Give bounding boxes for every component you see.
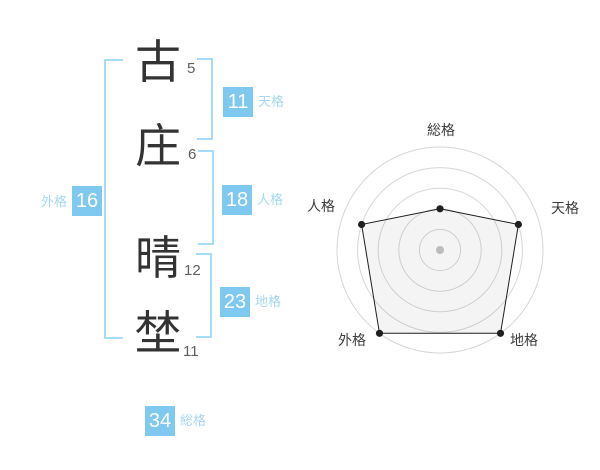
radar-data-point bbox=[358, 221, 365, 228]
radar-data-point bbox=[515, 221, 522, 228]
soukaku-score-badge: 34 bbox=[145, 406, 175, 436]
jinkaku-score-label: 人格 bbox=[257, 193, 283, 207]
stroke-count-2: 6 bbox=[188, 147, 196, 163]
radar-data-polygon bbox=[362, 209, 519, 333]
radar-axis-tenkaku: 天格 bbox=[551, 198, 579, 218]
tenkaku-score-label: 天格 bbox=[258, 95, 284, 109]
gaikaku-bracket bbox=[104, 59, 123, 339]
name-char-2: 庄 bbox=[130, 122, 186, 170]
fortune-radar-chart: 総格 天格 地格 外格 人格 bbox=[300, 110, 580, 390]
chikaku-score-label: 地格 bbox=[255, 295, 281, 309]
tenkaku-score-badge: 11 bbox=[223, 87, 253, 117]
stroke-count-3: 12 bbox=[184, 263, 201, 279]
soukaku-score-label: 総格 bbox=[180, 414, 206, 428]
radar-data-point bbox=[497, 330, 504, 337]
jinkaku-bracket bbox=[198, 150, 214, 245]
radar-data-point bbox=[436, 205, 443, 212]
radar-axis-soukaku: 総格 bbox=[427, 120, 455, 140]
radar-data-point bbox=[376, 330, 383, 337]
stroke-count-1: 5 bbox=[187, 61, 195, 77]
name-char-4: 埜 bbox=[130, 309, 186, 357]
radar-axis-gaikaku: 外格 bbox=[338, 330, 366, 350]
jinkaku-score-badge: 18 bbox=[222, 185, 252, 215]
gaikaku-score-badge: 16 bbox=[72, 186, 102, 216]
radar-axis-chikaku: 地格 bbox=[510, 330, 538, 350]
tenkaku-bracket bbox=[197, 58, 213, 140]
name-char-3: 晴 bbox=[130, 234, 186, 282]
name-char-1: 古 bbox=[130, 38, 186, 86]
gaikaku-score-label: 外格 bbox=[41, 195, 67, 209]
radar-axis-jinkaku: 人格 bbox=[307, 196, 335, 216]
chikaku-score-badge: 23 bbox=[220, 287, 250, 317]
stroke-count-4: 11 bbox=[183, 344, 199, 360]
name-fortune-panel: 古 庄 晴 埜 5 6 12 11 11 天格 18 人格 23 地格 外格 1… bbox=[0, 0, 600, 470]
